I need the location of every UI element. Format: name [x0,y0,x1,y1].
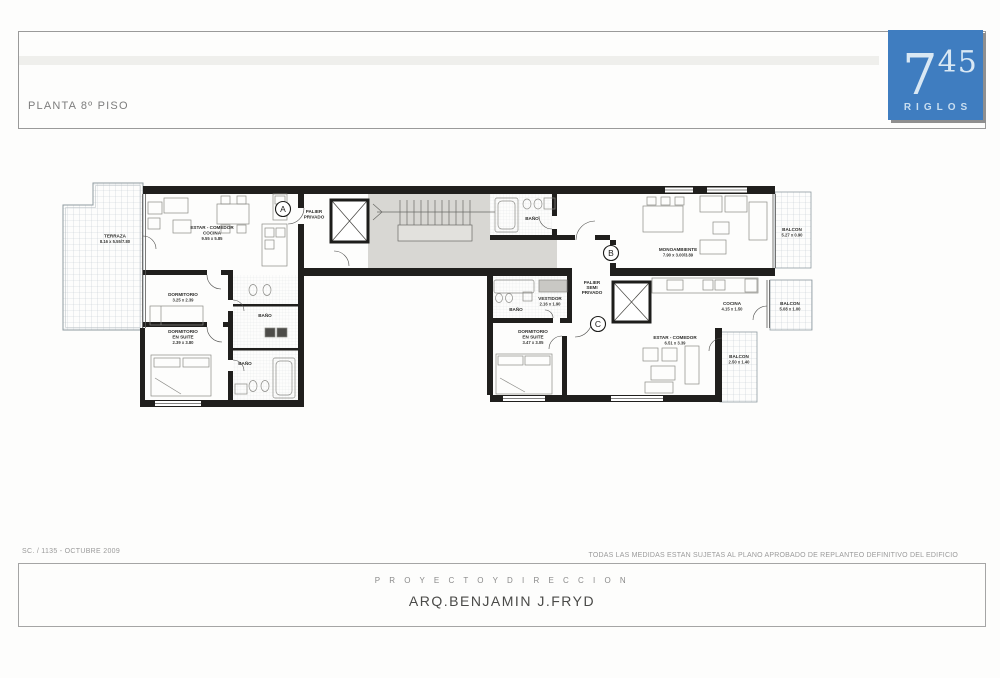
kitchen-counter-c [652,278,758,293]
label-bano-c: BAÑO [509,306,523,312]
sofa-set-a [148,198,191,233]
svg-text:9.55 x 5.85: 9.55 x 5.85 [202,236,224,241]
marker-a: A [276,202,291,217]
terrace-area [63,183,143,330]
balcony-bottom-right [720,332,757,402]
svg-text:6.51 x 3.39: 6.51 x 3.39 [665,341,687,346]
document-reference: SC. / 1135 - OCTUBRE 2009 [22,548,120,555]
svg-text:COCINA: COCINA [203,231,222,236]
header-frame [18,31,986,129]
bath-floor-b [490,194,552,235]
svg-text:PRIVADO: PRIVADO [582,290,603,295]
scan-artifact [19,56,879,65]
elevator-a [331,200,368,242]
label-palier-a: PALIER [306,209,323,214]
sofa-set-b [700,196,767,254]
elevator-b [613,282,650,322]
label-estar-a: ESTAR - COMEDOR [190,225,234,230]
label-bano-b: BAÑO [525,215,539,221]
label-suite-a: DORMITORIO [168,329,198,334]
label-bano-a1: BAÑO [258,312,272,318]
marker-b: B [604,246,619,261]
logo-brand: RIGLOS [888,102,983,113]
logo-number: 745 [902,32,978,107]
label-bano-a2: BAÑO [238,360,252,366]
svg-text:4.15 x 1.50: 4.15 x 1.50 [722,307,744,312]
svg-text:EN SUITE: EN SUITE [522,335,543,340]
svg-text:3.25 x 2.39: 3.25 x 2.39 [173,298,195,303]
label-balcon-c2: BALCON [729,354,749,359]
marker-c: C [591,317,606,332]
bed-suite-a [151,355,211,396]
label-dorm-a: DORMITORIO [168,292,198,297]
label-cocina-c: COCINA [723,301,742,306]
svg-text:PRIVADO: PRIVADO [304,215,325,220]
svg-text:5.08 x 1.00: 5.08 x 1.00 [780,307,802,312]
svg-text:7.90 x 3.00/3.89: 7.90 x 3.00/3.89 [663,253,694,258]
svg-text:2.39 x 3.80: 2.39 x 3.80 [173,340,195,345]
plan-sheet: PLANTA 8º PISO 745 RIGLOS [0,0,1000,678]
svg-text:2.50 x 1.40: 2.50 x 1.40 [729,360,751,365]
svg-text:C: C [595,319,601,329]
bed-c [496,354,552,394]
floor-plan-area: A B C TERRAZA 8.16 x 5.55/7.80 ESTAR - C… [55,178,815,413]
svg-text:B: B [608,248,614,258]
label-balcon-c1: BALCON [780,301,800,306]
svg-text:5.27 x 0.90: 5.27 x 0.90 [782,233,804,238]
project-direction-label: P R O Y E C T O Y D I R E C C I O N [19,576,985,585]
svg-text:EN SUITE: EN SUITE [172,335,193,340]
floor-plan-svg: A B C TERRAZA 8.16 x 5.55/7.80 ESTAR - C… [55,178,815,413]
label-balcon-b: BALCON [782,227,802,232]
label-estar-c: ESTAR - COMEDOR [653,335,697,340]
riglos-logo: 745 RIGLOS [888,30,983,120]
label-suite-c: DORMITORIO [518,329,548,334]
label-mono-b: MONOAMBIENTE [659,247,697,252]
svg-text:3.47 x 3.05: 3.47 x 3.05 [523,340,545,345]
bath-floor-a [233,275,298,400]
svg-text:A: A [280,204,286,214]
title-block: P R O Y E C T O Y D I R E C C I O N ARQ.… [18,563,986,627]
architect-name: ARQ.BENJAMIN J.FRYD [19,593,985,609]
label-terraza: TERRAZA [104,234,127,239]
measurements-disclaimer: TODAS LAS MEDIDAS ESTAN SUJETAS AL PLANO… [589,552,959,559]
label-vestidor-c: VESTIDOR [538,296,562,301]
wardrobe-c [539,280,567,292]
sofa-set-c [643,346,699,393]
svg-text:2.16 x 1.90: 2.16 x 1.90 [540,302,562,307]
page-title: PLANTA 8º PISO [28,100,129,112]
svg-text:8.16 x 5.55/7.80: 8.16 x 5.55/7.80 [100,239,131,244]
dining-table-b [643,197,684,232]
